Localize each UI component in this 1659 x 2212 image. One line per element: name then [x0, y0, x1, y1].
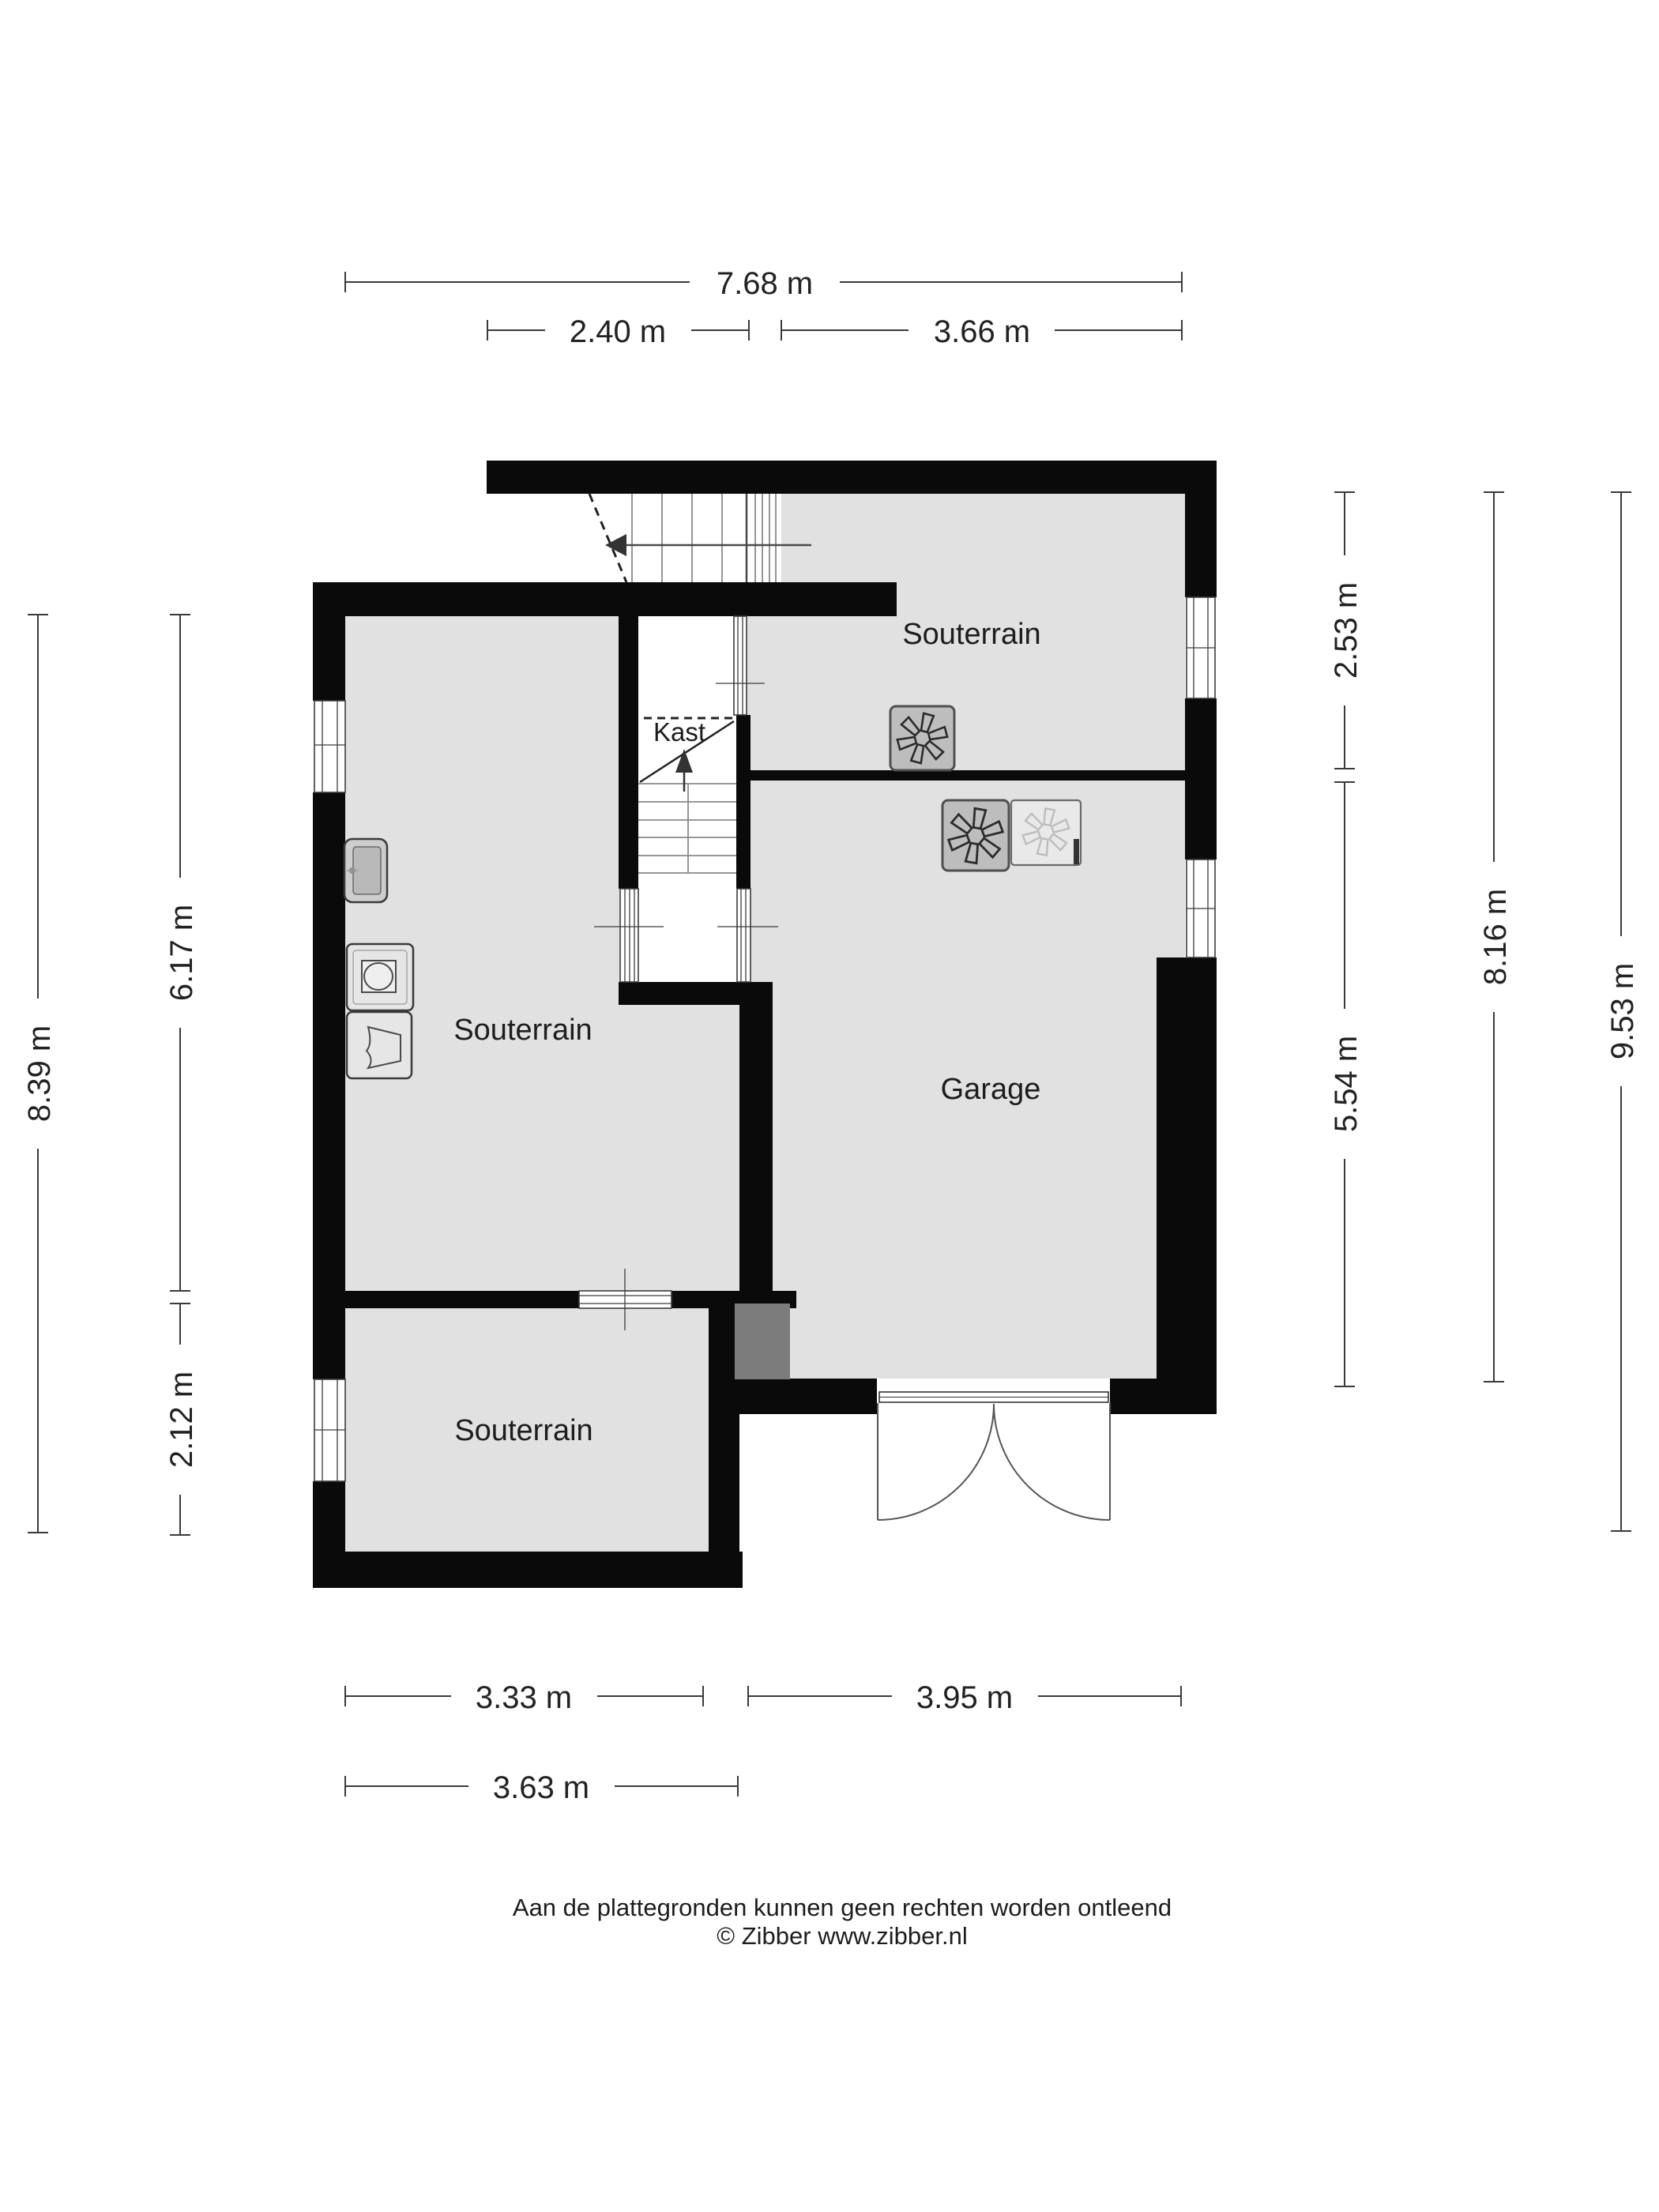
- disclaimer-text: Aan de plattegronden kunnen geen rechten…: [513, 1894, 1172, 1921]
- duct-block: [735, 1303, 790, 1379]
- dimension-right-middle: 8.16 m: [1474, 492, 1514, 1382]
- svg-text:8.16 m: 8.16 m: [1478, 889, 1513, 985]
- room-label-souterrain-left: Souterrain: [453, 1014, 592, 1047]
- dimension-bottom-right: 3.95 m: [748, 1676, 1181, 1716]
- svg-text:7.68 m: 7.68 m: [717, 266, 813, 301]
- dimension-left-lower: 2.12 m: [160, 1303, 200, 1535]
- room-label-kast: Kast: [653, 717, 705, 747]
- dimension-top-right: 3.66 m: [781, 310, 1182, 350]
- understair-space: [638, 889, 737, 982]
- wall-right-1: [1185, 461, 1217, 597]
- copyright-text: © Zibber www.zibber.nl: [717, 1922, 967, 1950]
- svg-text:3.66 m: 3.66 m: [934, 314, 1030, 349]
- wall-divider-v1: [739, 982, 773, 1308]
- fan-vent-icon: [1011, 800, 1081, 865]
- wall-right-3: [1157, 957, 1217, 1414]
- svg-text:6.17 m: 6.17 m: [164, 905, 199, 1001]
- dimension-left-upper: 6.17 m: [160, 615, 200, 1291]
- wall-top-outer: [487, 461, 1217, 494]
- dimension-bottom-left: 3.33 m: [345, 1676, 703, 1716]
- svg-text:5.54 m: 5.54 m: [1329, 1036, 1364, 1132]
- wall-kast-left: [619, 616, 638, 889]
- dimension-top-left: 2.40 m: [487, 310, 749, 350]
- dimension-right-inner-bottom: 5.54 m: [1325, 782, 1364, 1386]
- stair-landing: [638, 616, 735, 715]
- svg-text:3.63 m: 3.63 m: [493, 1770, 589, 1805]
- svg-text:2.53 m: 2.53 m: [1329, 582, 1364, 679]
- svg-text:8.39 m: 8.39 m: [22, 1025, 57, 1122]
- room-label-garage: Garage: [941, 1073, 1041, 1106]
- dimension-bottom-outer: 3.63 m: [345, 1766, 738, 1806]
- dimension-right-inner-top: 2.53 m: [1325, 492, 1364, 769]
- dimension-right-outer: 9.53 m: [1601, 492, 1641, 1531]
- svg-text:2.12 m: 2.12 m: [164, 1371, 199, 1468]
- sink-icon: [344, 839, 387, 902]
- window-symbol: [314, 701, 345, 792]
- double-garage-door-icon: [877, 1379, 1110, 1520]
- window-symbol: [1187, 597, 1215, 698]
- wall-garage-bottom-right: [1110, 1379, 1217, 1414]
- room-label-souterrain-top: Souterrain: [902, 618, 1040, 651]
- floorplan-page: Souterrain Souterrain Souterrain Garage …: [0, 0, 1659, 2212]
- wall-left-1: [313, 616, 345, 701]
- fan-vent-icon: [942, 800, 1009, 871]
- stairs-upper-area: [487, 494, 781, 582]
- svg-text:3.33 m: 3.33 m: [476, 1680, 572, 1715]
- window-symbol: [1187, 860, 1215, 957]
- svg-text:3.95 m: 3.95 m: [916, 1680, 1013, 1715]
- laundry-basket-icon: [347, 1012, 412, 1078]
- wall-bottom-left: [313, 1552, 743, 1588]
- wall-shaft-bottom: [619, 982, 773, 1005]
- wall-kast-right: [736, 715, 750, 889]
- room-label-souterrain-bottom: Souterrain: [454, 1414, 592, 1447]
- floorplan-svg: Souterrain Souterrain Souterrain Garage …: [0, 0, 1659, 2212]
- wall-left-2: [313, 792, 345, 1379]
- svg-text:9.53 m: 9.53 m: [1605, 963, 1640, 1059]
- wall-garage-bottom-left: [739, 1379, 877, 1414]
- washing-machine-icon: [347, 944, 413, 1010]
- wall-interior-h2: [345, 1291, 796, 1308]
- dimension-left-total: 8.39 m: [18, 615, 58, 1533]
- fan-vent-icon: [890, 706, 954, 770]
- footer: Aan de plattegronden kunnen geen rechten…: [513, 1894, 1172, 1950]
- svg-text:2.40 m: 2.40 m: [570, 314, 666, 349]
- wall-right-2: [1185, 698, 1217, 860]
- dimension-top-total: 7.68 m: [345, 262, 1182, 302]
- wall-divider-top: [750, 770, 1217, 781]
- window-symbol: [314, 1379, 345, 1481]
- wall-leftroom-top: [313, 582, 897, 616]
